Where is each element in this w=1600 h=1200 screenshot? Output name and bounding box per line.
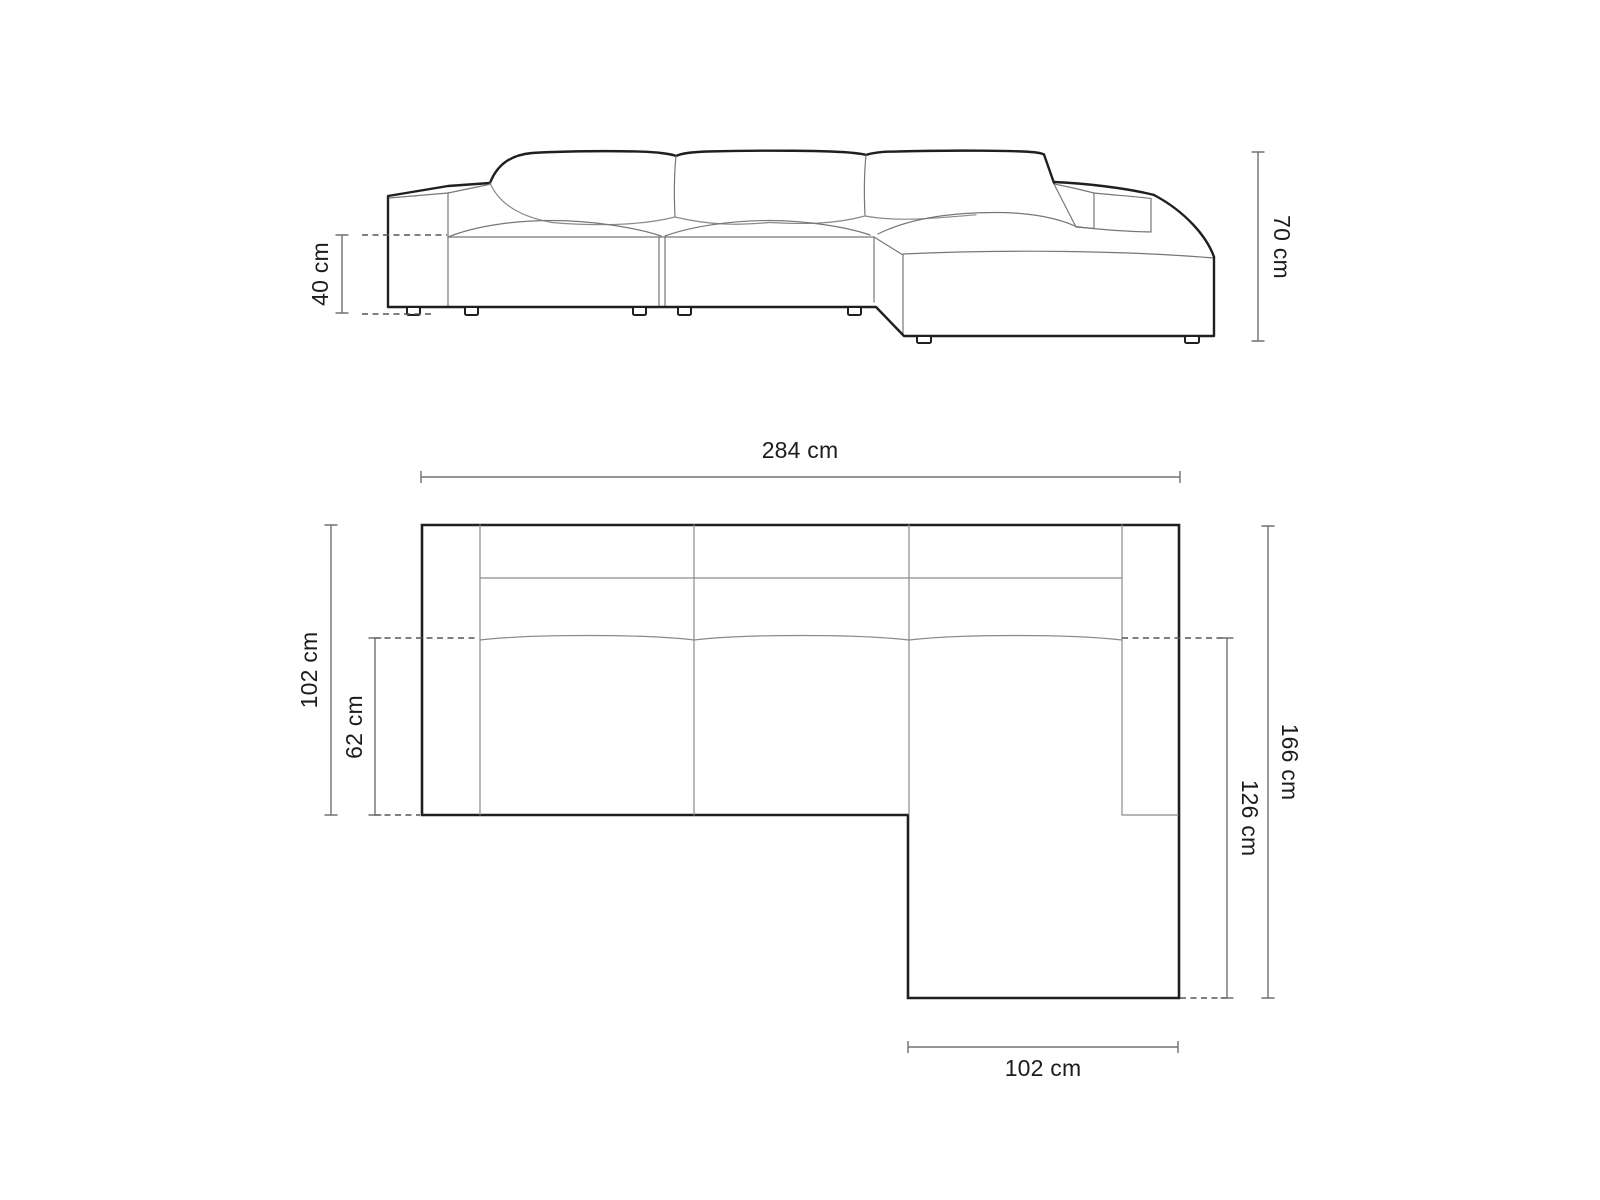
dim-label-chaise-width: 102 cm <box>1005 1055 1082 1081</box>
left-armrest-outline <box>388 183 490 307</box>
dim-label-seat-height: 40 cm <box>307 242 333 306</box>
right-armrest-top-outline <box>1054 182 1154 195</box>
right-armrest-front-top-edge <box>1094 193 1151 199</box>
dim-label-main-depth: 102 cm <box>296 632 322 709</box>
sofa-foot <box>633 307 646 315</box>
dimension-main-depth: 102 cm <box>296 525 337 815</box>
right-armrest-inner-slant <box>1054 184 1076 227</box>
chaise-base-top-edge <box>903 251 1214 258</box>
back-cushion-1-left-curve <box>490 183 552 223</box>
sofa-dimension-diagram: 40 cm 70 cm 284 cm 102 cm <box>0 0 1600 1200</box>
dim-line-seat-height <box>336 235 349 313</box>
dim-line-overall-depth <box>1262 526 1275 998</box>
back-cushion-3-top <box>866 151 1044 155</box>
dimension-overall-width: 284 cm <box>421 437 1180 483</box>
dim-label-overall-height: 70 cm <box>1269 215 1295 279</box>
dim-label-overall-depth: 166 cm <box>1277 724 1303 801</box>
sofa-foot <box>848 307 861 315</box>
back-cushion-2-bottom-right <box>769 216 865 223</box>
sofa-foot <box>465 307 478 315</box>
dimension-overall-height: 70 cm <box>1252 152 1295 341</box>
dimension-chaise-width: 102 cm <box>908 1041 1178 1081</box>
back-cushion-3-right-edge <box>1044 155 1054 184</box>
plan-outline <box>422 525 1179 998</box>
back-cushion-divider-2 <box>864 155 866 216</box>
base-bottom-outline <box>388 257 1214 336</box>
chaise-foot <box>917 336 931 343</box>
chaise-top-slant-edge <box>874 237 903 255</box>
dimension-overall-depth: 166 cm <box>1262 526 1303 998</box>
dim-line-main-depth <box>325 525 338 815</box>
dim-line-overall-width <box>421 471 1180 483</box>
back-cushion-3-bottom <box>865 215 976 219</box>
chaise-cushion-front <box>878 213 1151 235</box>
back-cushion-2-top <box>676 151 866 156</box>
right-armrest-inner-bottom <box>1076 227 1094 229</box>
dim-label-seat-depth: 62 cm <box>341 695 367 759</box>
back-cushion-1-top <box>490 151 676 183</box>
chaise-foot <box>1185 336 1199 343</box>
plan-view: 284 cm 102 cm 62 cm 166 cm 126 cm 102 cm <box>296 437 1303 1081</box>
chaise-outer-curve <box>1154 195 1214 257</box>
dim-line-chaise-width <box>908 1041 1178 1053</box>
dim-line-seat-depth <box>369 638 382 815</box>
dimension-seat-depth: 62 cm <box>341 638 381 815</box>
dim-label-overall-width: 284 cm <box>762 437 839 463</box>
dim-line-chaise-depth <box>1221 638 1234 998</box>
dim-line-overall-height <box>1252 152 1265 341</box>
back-cushion-divider-1 <box>674 156 676 217</box>
dimension-chaise-depth: 126 cm <box>1221 638 1263 998</box>
sofa-foot <box>678 307 691 315</box>
diagram-canvas: 40 cm 70 cm 284 cm 102 cm <box>0 0 1600 1200</box>
dimension-seat-height: 40 cm <box>307 235 348 313</box>
front-view: 40 cm 70 cm <box>307 151 1295 343</box>
dim-label-chaise-depth: 126 cm <box>1237 780 1263 857</box>
